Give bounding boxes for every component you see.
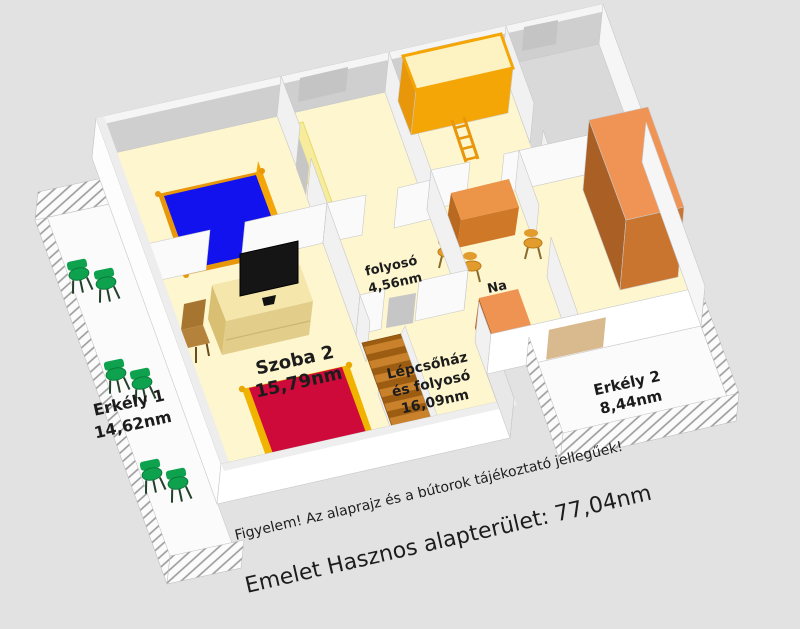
door-leaf — [386, 293, 416, 328]
bed-post — [155, 191, 161, 197]
bed-post — [259, 168, 265, 174]
floorplan-render: Szoba 2 15,79nm Erkély 1 14,62nm Erkély … — [0, 0, 800, 629]
bed-post — [239, 386, 245, 392]
bed-post — [346, 362, 352, 368]
floorplan-3d-view: Szoba 2 15,79nm Erkély 1 14,62nm Erkély … — [0, 0, 800, 629]
